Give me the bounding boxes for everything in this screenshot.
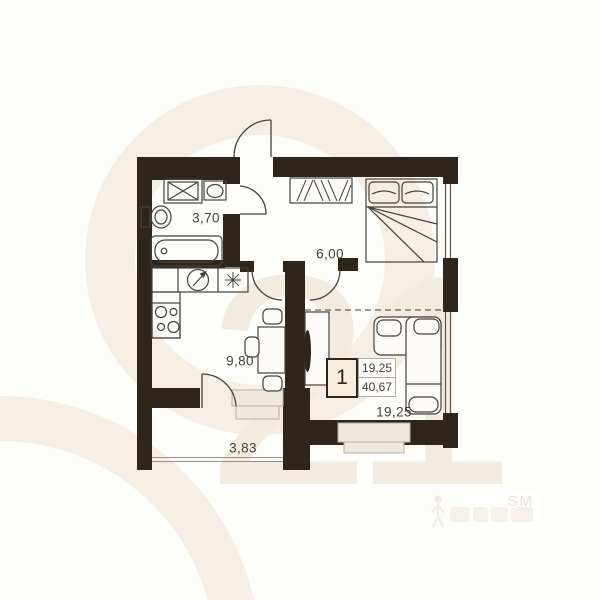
watermark-sm-text: SM — [508, 493, 534, 510]
unit-living-area: 19,25 — [358, 358, 396, 378]
corner-watermark: SM — [428, 492, 568, 538]
living-room-window-sill — [344, 442, 404, 453]
living-room-door — [310, 270, 340, 300]
stove-icon — [152, 303, 180, 338]
balcony-door — [202, 374, 236, 408]
room-area-label-bathroom: 3,70 — [192, 211, 220, 226]
entry-door — [234, 120, 271, 157]
washing-machine-icon — [164, 179, 202, 203]
unit-rooms-count: 1 — [326, 358, 358, 398]
unit-total-area: 40,67 — [358, 377, 396, 397]
unit-areas: 19,25 40,67 — [358, 358, 396, 398]
floor-plan: 21 — [0, 0, 600, 600]
room-area-label-hallway: 6,00 — [316, 247, 344, 262]
bed-icon — [366, 179, 437, 262]
wardrobe-icon — [290, 178, 352, 203]
room-area-label-living-room: 19,25 — [376, 405, 412, 420]
room-area-label-kitchen: 9,80 — [226, 354, 254, 369]
kitchen-sink-icon — [188, 270, 209, 291]
kitchen-balcony-window — [232, 390, 283, 406]
kitchen-door — [252, 270, 282, 300]
person-icon — [430, 494, 446, 530]
tv-icon — [304, 330, 311, 372]
dining-table-icon — [245, 309, 285, 391]
living-room-window — [338, 423, 410, 442]
balcony-glazing — [152, 458, 283, 462]
unit-info-badge: 1 19,25 40,67 — [326, 358, 396, 398]
fridge-snowflake-icon — [225, 272, 241, 288]
bathtub-icon — [151, 236, 222, 266]
room-area-label-balcony: 3,83 — [229, 441, 257, 456]
kitchen-balcony-window-sill — [236, 406, 279, 419]
bathroom-door — [240, 186, 266, 214]
